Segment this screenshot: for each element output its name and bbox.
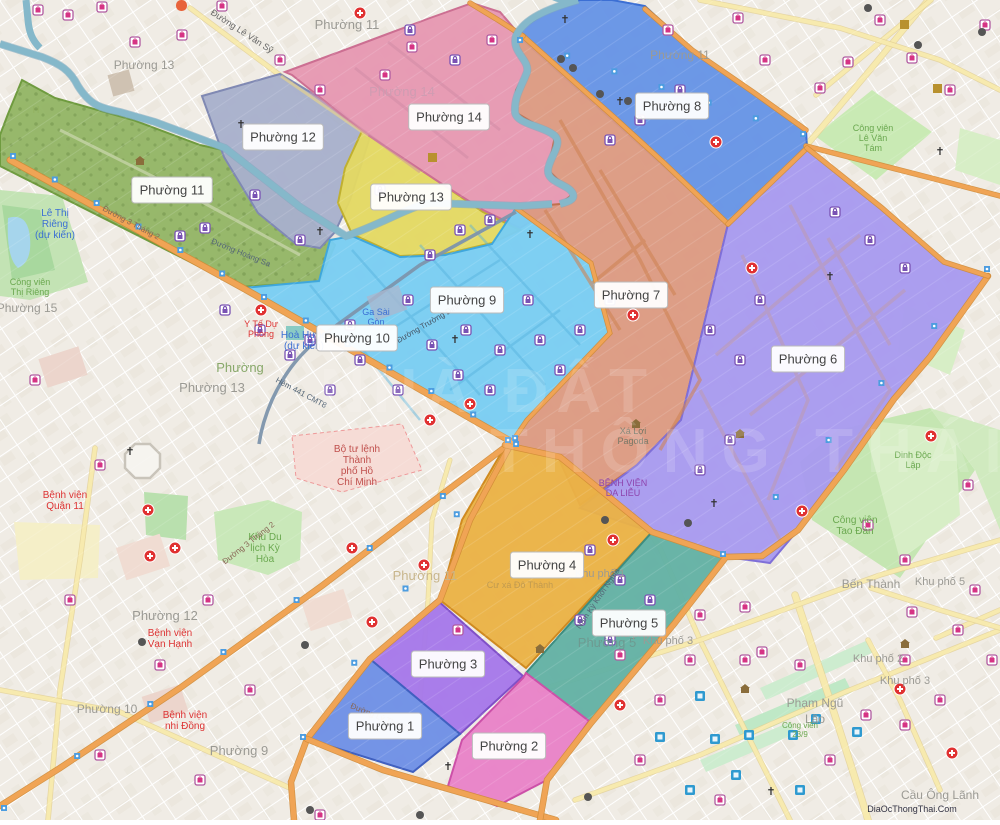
svg-text:Phường 11: Phường 11: [393, 568, 458, 583]
svg-text:✝: ✝: [560, 14, 569, 26]
svg-text:Lê Thị: Lê Thị: [41, 208, 69, 219]
svg-text:Phường 13: Phường 13: [114, 58, 175, 72]
svg-text:Riêng: Riêng: [42, 219, 68, 230]
svg-text:lịch Kỳ: lịch Kỳ: [250, 543, 279, 554]
svg-text:Phường 11: Phường 11: [650, 48, 710, 62]
svg-text:(dự kiến): (dự kiến): [35, 229, 75, 241]
svg-text:Phường 11: Phường 11: [315, 17, 380, 32]
svg-text:Bệnh viện: Bệnh viện: [163, 710, 207, 721]
svg-text:DiaOcThongThai.Com: DiaOcThongThai.Com: [867, 804, 957, 814]
svg-text:Phường 14: Phường 14: [369, 84, 435, 99]
svg-text:Công viên: Công viên: [782, 721, 818, 730]
svg-text:Tám: Tám: [864, 143, 882, 153]
svg-text:✝: ✝: [935, 146, 944, 158]
svg-text:Phường 2: Phường 2: [480, 739, 538, 754]
svg-text:Bến Thành: Bến Thành: [842, 577, 901, 591]
svg-text:Lê Văn: Lê Văn: [859, 133, 888, 143]
svg-text:✝: ✝: [615, 96, 624, 108]
svg-text:Phường 3: Phường 3: [419, 657, 477, 672]
svg-text:Phường 6: Phường 6: [779, 352, 837, 367]
svg-text:Bệnh viện: Bệnh viện: [148, 628, 192, 639]
svg-text:✝: ✝: [825, 271, 834, 283]
svg-text:Phường 15: Phường 15: [0, 301, 58, 315]
svg-text:Y Tế Dự: Y Tế Dự: [244, 319, 278, 329]
svg-text:Phường 12: Phường 12: [132, 608, 198, 623]
svg-text:NHÀ ĐẤT: NHÀ ĐẤT: [320, 357, 655, 426]
svg-text:Phường 5: Phường 5: [600, 616, 658, 631]
svg-text:Phường: Phường: [216, 360, 264, 375]
svg-text:phố Hồ: phố Hồ: [341, 465, 374, 477]
svg-text:Cầu Ông Lãnh: Cầu Ông Lãnh: [901, 787, 979, 802]
svg-text:✝: ✝: [766, 786, 775, 798]
svg-text:Tao Đàn: Tao Đàn: [836, 526, 873, 537]
svg-text:Phường 10: Phường 10: [77, 702, 138, 716]
svg-text:Khu phố 5: Khu phố 5: [915, 576, 965, 588]
svg-text:Phường 8: Phường 8: [643, 99, 701, 114]
svg-text:Thị Riêng: Thị Riêng: [11, 287, 50, 297]
svg-text:23/9: 23/9: [792, 730, 808, 739]
svg-text:Khu phố 3: Khu phố 3: [643, 635, 693, 647]
svg-text:Khu phố 3: Khu phố 3: [880, 675, 930, 687]
svg-text:Khu phố 2: Khu phố 2: [853, 653, 903, 665]
svg-text:Phường 9: Phường 9: [438, 293, 496, 308]
svg-text:Phường 9: Phường 9: [210, 743, 268, 758]
svg-text:Vạn Hạnh: Vạn Hạnh: [148, 639, 192, 650]
svg-text:Quận 11: Quận 11: [46, 501, 84, 512]
svg-text:Phường 13: Phường 13: [378, 190, 444, 205]
svg-text:Hòa: Hòa: [256, 554, 275, 565]
svg-text:Chí Minh: Chí Minh: [337, 477, 377, 488]
svg-text:Bộ tư lệnh: Bộ tư lệnh: [334, 444, 380, 455]
svg-text:Phạm Ngũ: Phạm Ngũ: [787, 696, 844, 710]
svg-text:Phường 1: Phường 1: [356, 719, 414, 734]
svg-text:Thành: Thành: [343, 455, 371, 466]
svg-text:Phường 12: Phường 12: [250, 130, 316, 145]
svg-text:DA LIỄU: DA LIỄU: [606, 487, 641, 498]
svg-text:✝: ✝: [709, 498, 718, 510]
svg-text:Công viên: Công viên: [10, 277, 51, 287]
svg-text:Bệnh viện: Bệnh viện: [43, 490, 87, 501]
svg-text:Phường 4: Phường 4: [518, 558, 576, 573]
svg-text:Cư xá Đô Thành: Cư xá Đô Thành: [487, 580, 553, 590]
svg-text:✝: ✝: [443, 761, 452, 773]
svg-text:✝: ✝: [450, 334, 459, 346]
svg-text:Phường 14: Phường 14: [416, 110, 482, 125]
svg-text:THÔNG THÁI: THÔNG THÁI: [490, 417, 1000, 486]
svg-text:✝: ✝: [315, 226, 324, 238]
svg-text:Công viên: Công viên: [853, 123, 894, 133]
svg-text:✝: ✝: [525, 229, 534, 241]
svg-text:✝: ✝: [125, 446, 134, 458]
svg-text:Phường 10: Phường 10: [324, 331, 390, 346]
svg-text:Phường 7: Phường 7: [602, 288, 660, 303]
svg-text:nhi Đồng: nhi Đồng: [165, 720, 205, 732]
svg-text:Ga Sài: Ga Sài: [362, 307, 390, 317]
svg-text:Công viên: Công viên: [832, 515, 877, 526]
svg-text:Phường 13: Phường 13: [179, 380, 245, 395]
svg-text:Phường 11: Phường 11: [140, 183, 205, 198]
svg-text:Phòng: Phòng: [248, 329, 274, 339]
